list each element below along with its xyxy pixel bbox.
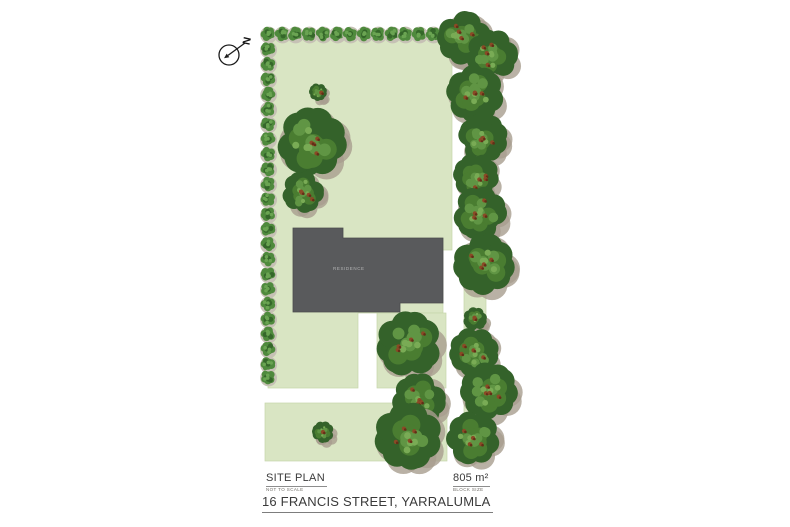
block-area-value: 805 m²	[453, 472, 490, 487]
hedge-tree	[260, 370, 277, 387]
hedge-tree	[260, 237, 277, 254]
site-plan-title: SITE PLAN	[266, 472, 327, 487]
hedge-tree	[260, 297, 277, 314]
hedge-tree	[260, 132, 277, 149]
hedge-tree	[260, 162, 277, 179]
site-plan-drawing	[0, 0, 790, 527]
hedge-tree	[260, 312, 277, 329]
hedge-tree	[260, 342, 277, 359]
hedge-tree	[260, 117, 277, 134]
hedge-tree	[260, 42, 277, 59]
tree	[453, 233, 520, 300]
hedge-tree	[260, 207, 277, 224]
hedge-tree	[260, 87, 277, 104]
hedge-tree	[260, 327, 277, 344]
residence-label: RESIDENCE	[333, 266, 365, 271]
site-plan-canvas: N RESIDENCE SITE PLAN NOT TO SCALE 805 m…	[0, 0, 790, 527]
north-label: N	[239, 36, 252, 46]
hedge-tree	[260, 192, 277, 209]
hedge-tree	[260, 147, 277, 164]
hedge-tree	[260, 57, 277, 74]
hedge-tree	[260, 222, 277, 239]
block-size-label: BLOCK SIZE	[453, 487, 484, 492]
hedge-tree	[260, 72, 277, 89]
scale-note: NOT TO SCALE	[266, 487, 304, 492]
hedge-tree	[260, 102, 277, 119]
hedge-tree	[260, 267, 277, 284]
hedge-tree	[260, 282, 277, 299]
hedge-tree	[260, 177, 277, 194]
residence-building	[293, 228, 443, 312]
north-arrow-icon: N	[211, 30, 261, 68]
hedge-tree	[260, 252, 277, 269]
property-address: 16 FRANCIS STREET, YARRALUMLA	[262, 494, 493, 513]
